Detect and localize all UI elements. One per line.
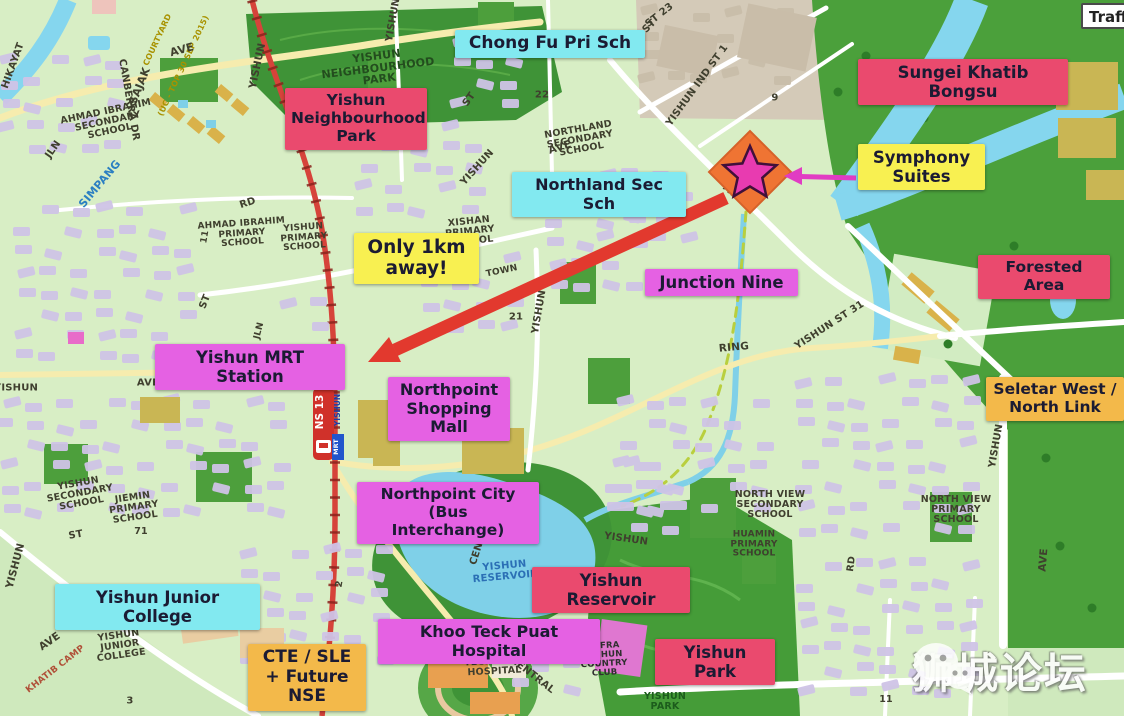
map-text: AVE [37,631,62,653]
map-text: 22 [535,91,549,102]
map-text: ST [198,293,213,310]
map-text: ST [462,91,479,109]
map-text: AVE [1037,548,1050,572]
map-text: ST [68,530,84,543]
callout-northpoint-city-bus: Northpoint City (Bus Interchange) [357,482,539,544]
map-text: AVE [720,182,745,206]
tree-icons [834,52,1097,613]
map-text: YISHUN [459,148,496,188]
callout-yishun-junior-college: Yishun Junior College [55,584,260,630]
yishun-park-area [588,496,800,716]
map-text: YISHUN PARK [644,692,686,712]
map-text: NORTHLAND SECONDARY SCHOOL [544,119,617,161]
map-text: CENTRAL [508,656,556,697]
map-text: NORTH VIEW SECONDARY SCHOOL [735,490,806,520]
map-text: YISHUN RESERVOIR [471,559,538,586]
map-text: JIEMIN PRIMARY SCHOOL [107,490,160,527]
map-text: COURTYARD [142,13,173,68]
map-text: YISHUN [531,289,549,334]
map-text: YISHUN [603,532,648,549]
map-text: YISHUN JUNIOR COLLEGE [93,628,146,665]
callout-only-1km-away: Only 1km away! [354,233,479,284]
symphony-pointer-arrow [784,167,856,185]
map-text: AVE [547,139,573,157]
callout-chong-fu-pri-sch: Chong Fu Pri Sch [455,30,645,58]
map-text: AHMAD IBRAHIM PRIMARY SCHOOL [197,217,286,252]
star-marker [709,131,791,213]
map-text: YISHUN ST 31 [793,300,866,353]
map-text: SIMPANG [77,158,123,210]
watermark-text: 狮城论坛 [912,640,1088,701]
roads [0,0,1124,716]
mrt-text: MRT [332,439,340,455]
map-text: YISHUN [385,0,403,43]
map-text: AVE [137,379,159,390]
callout-forested-area: Forested Area [978,255,1110,299]
callout-symphony-suites: Symphony Suites [858,144,985,190]
map-text: 71 [134,527,148,537]
annotation-overlay: NS 13 MRT YISHUN [0,0,1124,716]
map-text: 9 [771,94,778,105]
map-text: YISHUN [0,384,38,395]
khatib-camp-area [0,534,250,716]
map-text: YISHUN [5,542,28,590]
callout-northpoint-shopping-mall: Northpoint Shopping Mall [388,377,510,441]
map-screenshot: HIKAYATJLNSAJAKSIMPANGCANBERRA DRCOURTYA… [0,0,1124,716]
water [0,0,1124,618]
landmark-buildings [68,0,1124,714]
map-text: ST 23 [644,2,676,30]
park-connector-dashed [622,212,746,506]
ktph-building [428,652,488,688]
map-text: CENTRAL [469,513,495,566]
map-text: 21 [509,313,523,324]
callout-khoo-teck-puat-hospital: Khoo Teck Puat Hospital [378,619,600,664]
callout-yishun-mrt-station: Yishun MRT Station [155,344,345,390]
map-text: NORTH VIEW PRIMARY SCHOOL [921,495,992,525]
callout-yishun-neighbourhood-park: Yishun Neighbourhood Park [285,88,427,150]
condo-blocks [149,84,250,144]
map-text: RING [718,341,749,355]
callout-yishun-park: Yishun Park [655,639,775,685]
map-text: AVE [169,41,196,59]
map-text: HIKAYAT [1,42,27,91]
mrt-line-code: NS 13 [314,395,326,430]
map-text: KHATIB CAMP [25,644,87,696]
running-track [418,638,538,716]
map-text: YISHUN IND ST 1 [665,43,731,128]
callout-seletar-west-north-link: Seletar West / North Link [986,377,1124,421]
map-text: 2 [334,580,345,588]
distance-arrow [368,198,726,362]
callout-northland-sec-sch: Northland Sec Sch [512,172,686,217]
callout-cte-sle-future-nse: CTE / SLE + Future NSE [248,644,366,711]
map-text: SAJAK [127,66,152,106]
map-text: 5 [266,377,273,388]
callout-junction-nine: Junction Nine [645,269,798,296]
traffic-button[interactable]: Traffic [1081,3,1124,29]
map-text: RD [239,196,258,211]
callout-layer: Chong Fu Pri SchSungei Khatib BongsuYish… [0,0,1124,716]
map-text: HUAMIN PRIMARY SCHOOL [730,531,777,560]
yishun-reservoir-water [395,472,596,618]
map-text: ST [641,18,659,36]
map-text: (UC - TOP 30 SEP 2015) [157,14,211,117]
map-text: XISHAN PRIMARY SCHOOL [444,214,497,249]
map-text: RD [846,556,858,573]
map-text: YISHUN [988,423,1006,468]
mrt-station-name: YISHUN [333,394,342,427]
map-text: JLN [44,139,64,161]
northpoint-block [462,428,524,474]
train-icon [316,440,331,453]
safra-building [595,619,648,677]
yishun-neighbourhood-park-area [246,6,562,126]
watermark: 狮城论坛 [912,640,1088,701]
map-text: JLN [253,321,267,340]
map-text: 11 [200,230,212,244]
map-text: YISHUN NEIGHBOURHOOD PARK [319,44,436,93]
map-text: CANBERRA DR [116,58,141,141]
map-base [0,0,1124,716]
map-text: SAFRA YISHUN COUNTRY CLUB [580,641,629,679]
map-text: KHOO TECK PUAT HOSPITAL [463,645,524,678]
map-text: TOWN [485,264,518,280]
callout-yishun-reservoir: Yishun Reservoir [532,567,690,613]
mrt-line [252,0,335,716]
map-text: 11 [879,695,893,705]
industrial-zone [636,0,836,120]
callout-sungei-khatib-bongsu: Sungei Khatib Bongsu [858,59,1068,105]
map-background [0,0,1124,716]
map-label-layer: HIKAYATJLNSAJAKSIMPANGCANBERRA DRCOURTYA… [0,0,1124,716]
buildings-layer [0,3,983,698]
map-text: YISHUN [248,42,269,90]
map-text: AHMAD IBRAHIM SECONDARY SCHOOL [60,98,157,147]
traffic-button-label: Traffic [1089,8,1124,26]
map-text: 3 [126,697,133,708]
map-text: YISHUN SECONDARY SCHOOL [44,473,115,514]
map-text: YISHUN PRIMARY SCHOOL [279,222,328,254]
forest-area [0,0,1124,716]
reservoir-park-ring [352,436,632,663]
mrt-station-badge: NS 13 MRT YISHUN [313,388,344,460]
